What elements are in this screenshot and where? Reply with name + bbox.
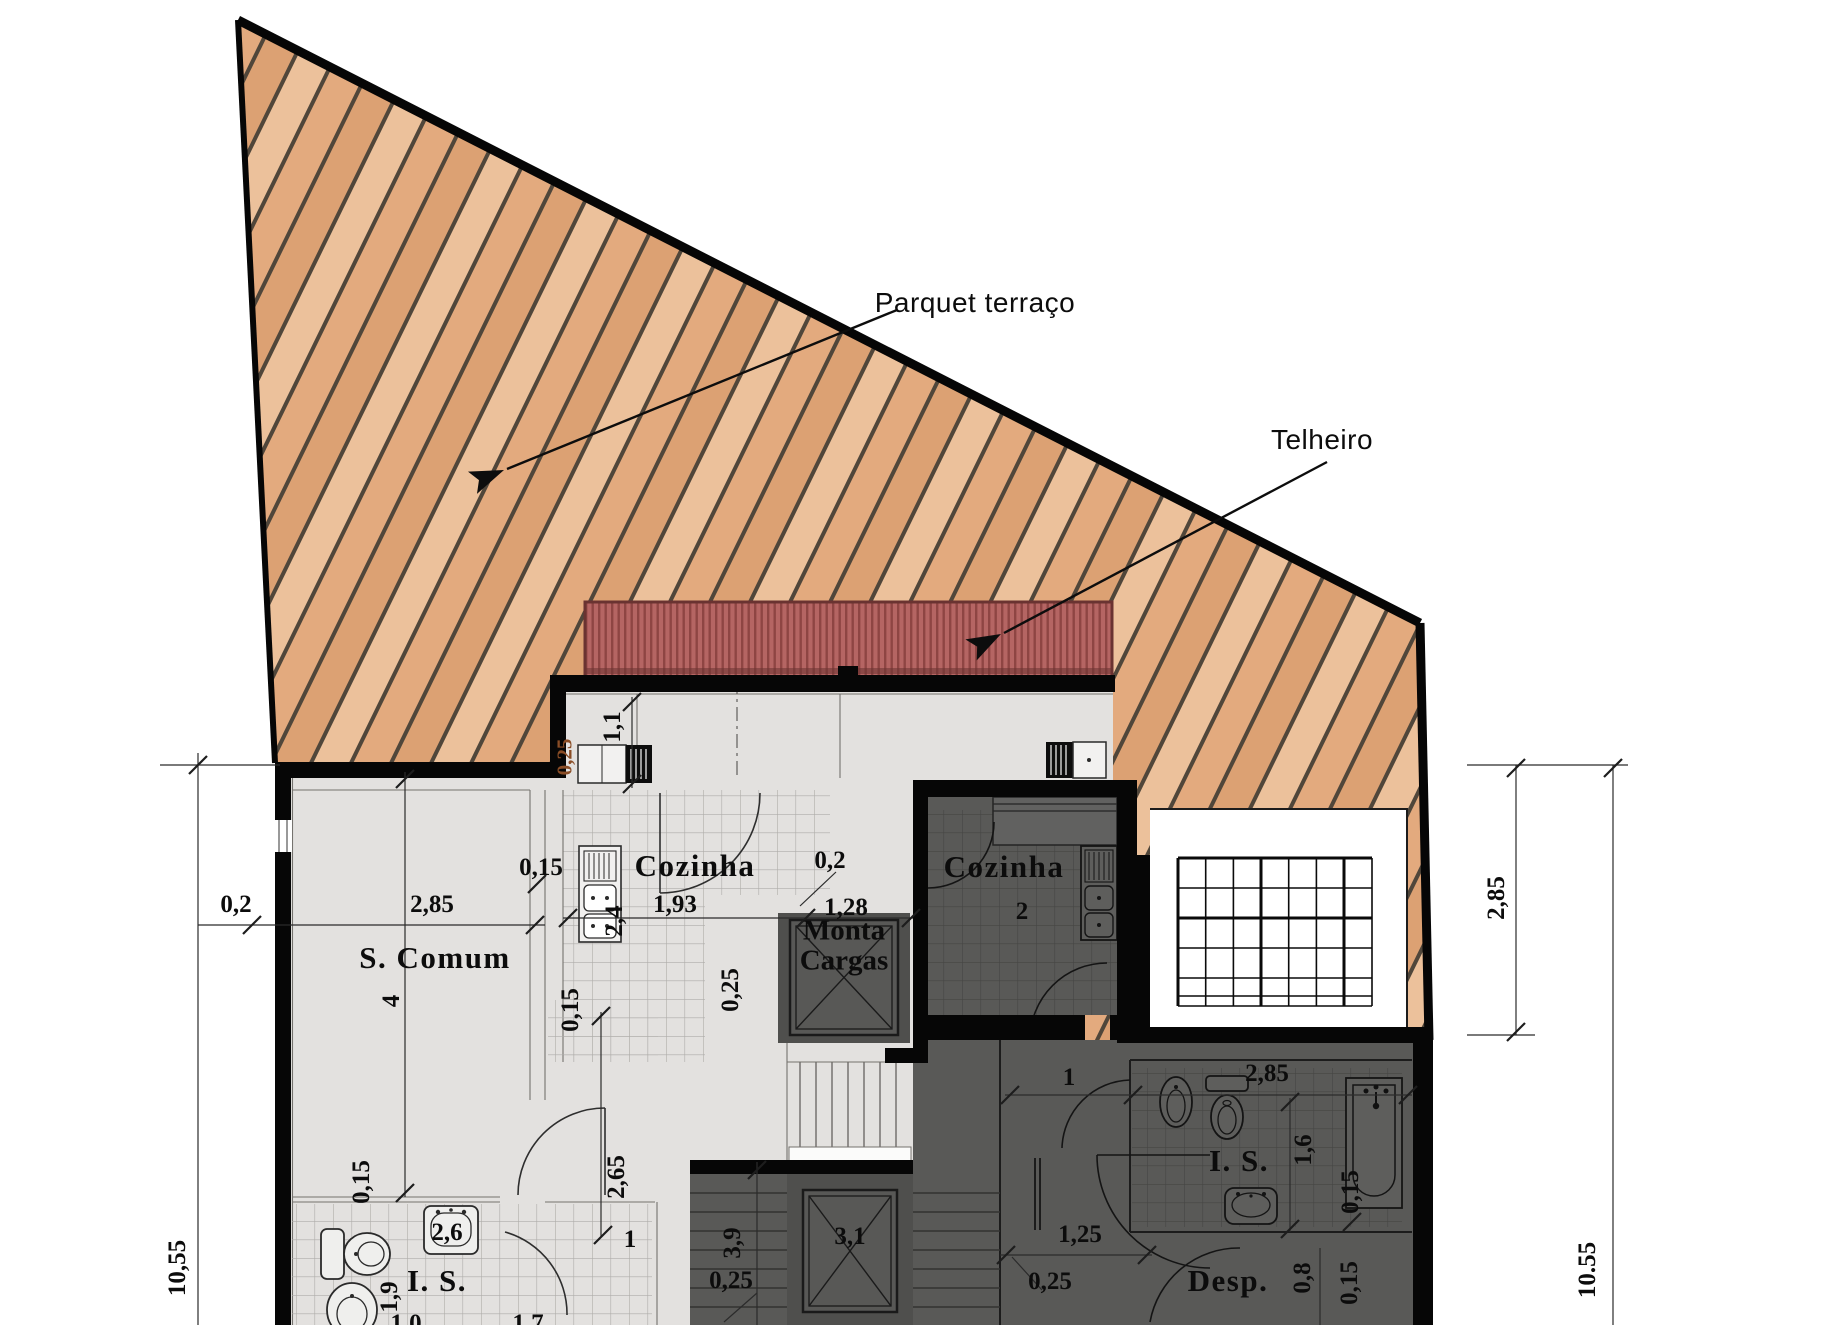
toilet-icon bbox=[321, 1229, 390, 1279]
dim-stairs-0-25: 0,25 bbox=[709, 1267, 753, 1295]
dim-stairs-3-9: 3,9 bbox=[719, 1227, 747, 1258]
dim-mc-1-28: 1,28 bbox=[824, 894, 868, 922]
label-parquet-terraco: Parquet terraço bbox=[875, 287, 1076, 319]
dim-coz1-1-1: 1,1 bbox=[599, 711, 627, 742]
room-label-cozinha-2: Cozinha bbox=[944, 849, 1065, 885]
dim-desp-0-8: 0,8 bbox=[1289, 1262, 1317, 1293]
plan-drawing bbox=[0, 0, 1842, 1325]
room-label-is-1: I. S. bbox=[407, 1263, 467, 1299]
dim-is2-1-6: 1,6 bbox=[1290, 1134, 1318, 1165]
stove-icon bbox=[578, 745, 652, 783]
floor-plan-canvas: Parquet terraço Telheiro S. Comum Cozinh… bbox=[0, 0, 1842, 1325]
dim-coz1-0-25: 0,25 bbox=[717, 968, 745, 1012]
dim-mc-0-2: 0,2 bbox=[814, 847, 845, 875]
kitchen-sink-icon bbox=[1081, 846, 1117, 940]
patio-skylight bbox=[1150, 808, 1407, 1027]
dim-shaft-3-1: 3,1 bbox=[834, 1223, 865, 1251]
telheiro-roof bbox=[585, 602, 1112, 677]
dim-left-0-2: 0,2 bbox=[220, 891, 251, 919]
dim-0-15-b: 0,15 bbox=[557, 988, 585, 1032]
dim-door-1: 1 bbox=[624, 1226, 637, 1254]
room-label-is-2: I. S. bbox=[1209, 1143, 1269, 1179]
dim-is1-1-9: 1,9 bbox=[376, 1281, 404, 1312]
dim-left-10-55: 10,55 bbox=[164, 1240, 192, 1296]
dim-0-15-a: 0,15 bbox=[519, 854, 563, 882]
dim-is1-2-6: 2,6 bbox=[431, 1219, 462, 1247]
monta-line2: Cargas bbox=[800, 946, 889, 976]
dim-coz2-2: 2 bbox=[1016, 898, 1029, 926]
dim-cut-1-0: 1,0 bbox=[390, 1310, 421, 1325]
dim-corr-0-25: 0,25 bbox=[1028, 1268, 1072, 1296]
room-label-cozinha-1: Cozinha bbox=[635, 848, 756, 884]
dim-is2-2-85: 2,85 bbox=[1245, 1060, 1289, 1088]
dim-is2-0-15: 0,15 bbox=[1337, 1170, 1365, 1214]
dim-corr-1-25: 1,25 bbox=[1058, 1221, 1102, 1249]
dim-right-2-85: 2,85 bbox=[1483, 876, 1511, 920]
dim-right-10-55: 10.55 bbox=[1574, 1242, 1602, 1298]
dim-s-comum-4: 4 bbox=[378, 995, 406, 1008]
stove-icon bbox=[1046, 742, 1106, 778]
sink-icon bbox=[1225, 1188, 1277, 1224]
dim-0-15-c: 0,15 bbox=[348, 1160, 376, 1204]
dim-hall-2-65: 2,65 bbox=[603, 1155, 631, 1199]
room-label-s-comum: S. Comum bbox=[359, 940, 511, 976]
dim-cut-1-7: 1,7 bbox=[512, 1310, 543, 1325]
room-label-monta-cargas: Monta Cargas bbox=[800, 916, 889, 975]
dim-left-2-85: 2,85 bbox=[410, 891, 454, 919]
dim-orange-0-25: 0,25 bbox=[553, 739, 578, 776]
dim-corr-1: 1 bbox=[1063, 1064, 1076, 1092]
room-label-desp: Desp. bbox=[1188, 1263, 1269, 1299]
dim-desp-0-15: 0,15 bbox=[1336, 1261, 1364, 1305]
dim-coz1-1-93: 1,93 bbox=[653, 891, 697, 919]
label-telheiro: Telheiro bbox=[1271, 424, 1373, 456]
dim-coz1-2-4: 2,4 bbox=[601, 905, 629, 936]
bidet-icon bbox=[1160, 1077, 1192, 1127]
